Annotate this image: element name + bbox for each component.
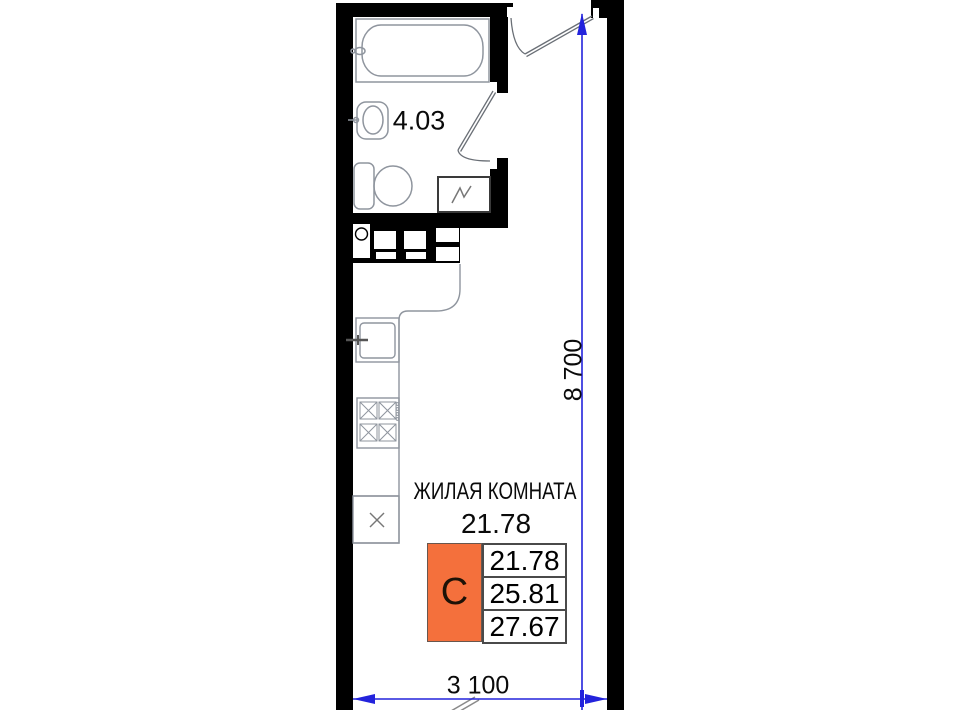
bathroom-door-icon [458, 91, 496, 161]
worktop-icon [353, 496, 399, 543]
room-name-label: ЖИЛАЯ КОМНАТА [414, 478, 577, 506]
apartment-type-legend: С 21.78 25.81 27.67 [427, 543, 567, 644]
vertical-dimension-label: 8 700 [560, 339, 589, 402]
toilet-icon [354, 163, 412, 209]
legend-areas-table: 21.78 25.81 27.67 [482, 543, 567, 644]
vent-shaft-icon [336, 224, 460, 263]
bathroom-area-label: 4.03 [393, 106, 446, 137]
bathtub-icon [351, 19, 489, 82]
room-area-label: 21.78 [461, 508, 531, 540]
floor-plan-page: 4.03 ЖИЛАЯ КОМНАТА 21.78 8 700 3 100 С 2… [0, 0, 960, 710]
bathroom-sink-icon [348, 102, 388, 139]
water-heater-icon [438, 177, 490, 212]
stove-icon [357, 398, 399, 448]
legend-area-row: 21.78 [484, 545, 565, 578]
horizontal-dimension-label: 3 100 [447, 672, 510, 701]
legend-area-row: 27.67 [484, 611, 565, 642]
legend-area-row: 25.81 [484, 578, 565, 611]
apartment-type-badge: С [427, 543, 482, 642]
kitchen-sink-icon [346, 318, 399, 362]
